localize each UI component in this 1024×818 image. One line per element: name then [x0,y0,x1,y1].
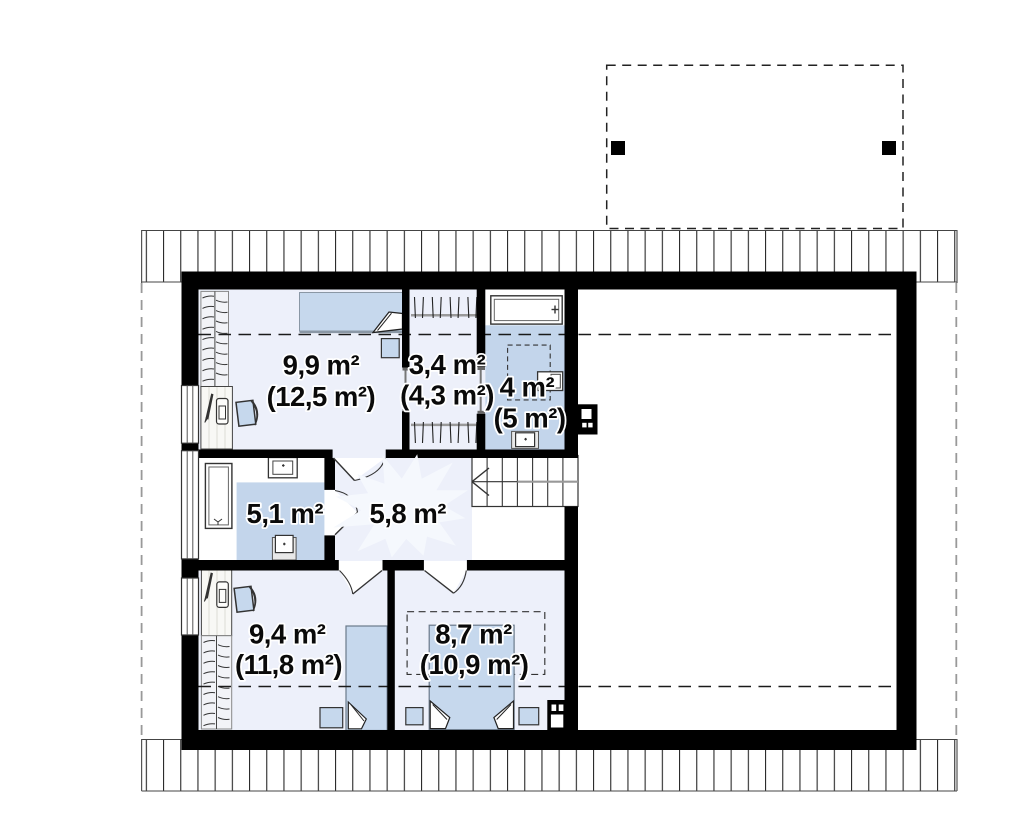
svg-text:9,4 m²: 9,4 m² [249,619,326,650]
svg-text:4 m²: 4 m² [500,372,555,403]
svg-text:9,9 m²: 9,9 m² [283,349,360,380]
svg-text:(12,5 m²): (12,5 m²) [267,381,376,412]
svg-text:(10,9 m²): (10,9 m²) [420,649,529,680]
svg-text:5,1 m²: 5,1 m² [247,498,324,529]
svg-text:5,8 m²: 5,8 m² [369,498,446,529]
svg-text:(5 m²): (5 m²) [494,403,566,434]
svg-text:(11,8 m²): (11,8 m²) [235,649,342,680]
svg-text:(4,3 m²): (4,3 m²) [400,379,494,410]
svg-text:3,4 m²: 3,4 m² [409,349,486,380]
svg-text:8,7 m²: 8,7 m² [435,619,512,650]
